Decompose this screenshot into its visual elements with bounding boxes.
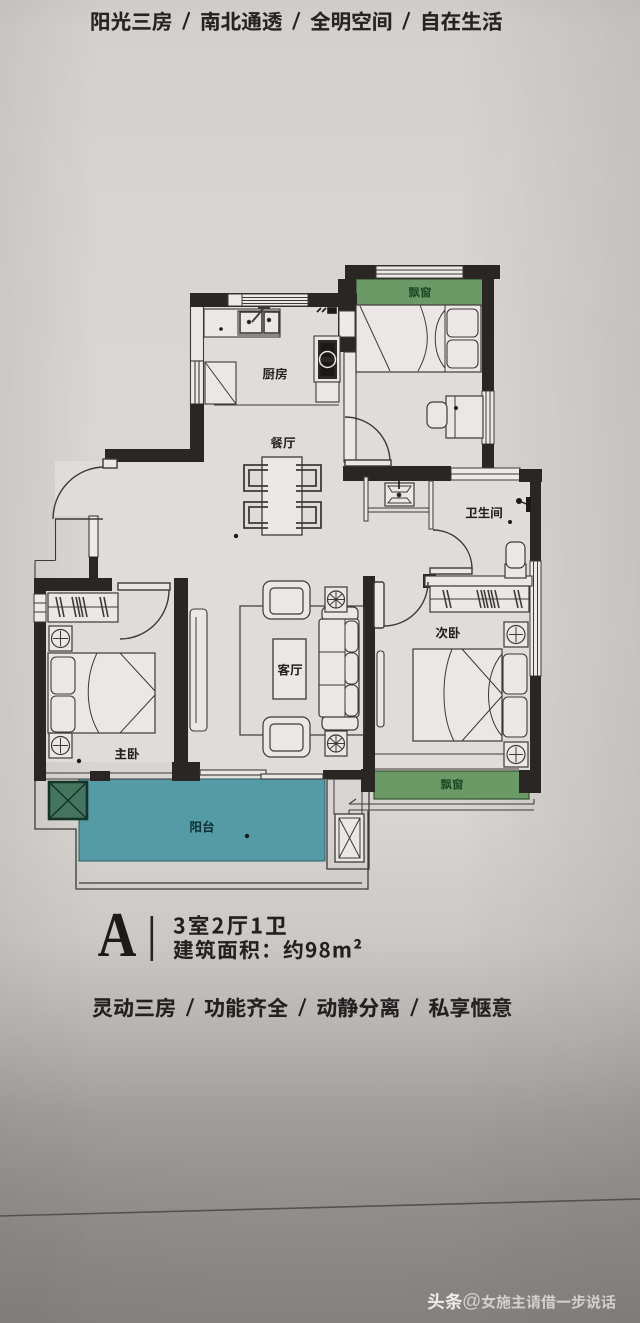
svg-text:@: @ <box>462 1291 481 1312</box>
svg-text:A: A <box>98 899 137 970</box>
